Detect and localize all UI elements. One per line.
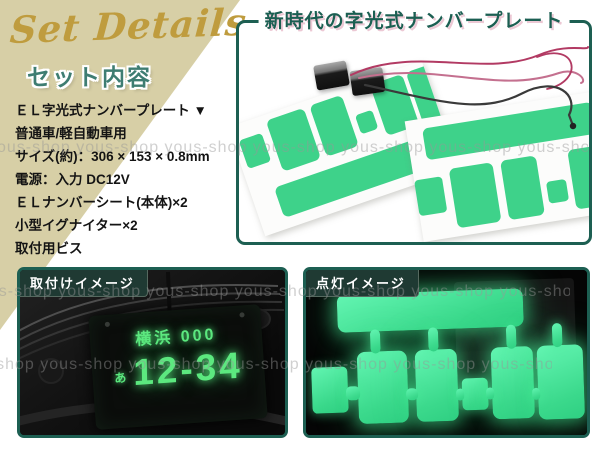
el-segment bbox=[491, 346, 535, 419]
spec-line-size: サイズ(約)：306 × 153 × 0.8mm bbox=[15, 145, 237, 168]
product-listing-image: Set Details セット内容 ＥＬ字光式ナンバープレート ▼ 普通車/軽自… bbox=[0, 0, 600, 450]
el-connector-tab bbox=[506, 325, 517, 349]
glow-panel: 点灯イメージ bbox=[303, 267, 590, 438]
el-connector-tab bbox=[552, 323, 563, 347]
el-segment bbox=[415, 349, 459, 422]
plate-region-text: 横浜 000 bbox=[134, 320, 217, 350]
el-segment bbox=[537, 344, 586, 420]
product-photo bbox=[239, 23, 589, 242]
wire-harness bbox=[239, 23, 589, 242]
el-segment bbox=[357, 350, 409, 424]
el-segment bbox=[462, 378, 489, 411]
glowing-el-sheet bbox=[309, 286, 586, 435]
glow-panel-label: 点灯イメージ bbox=[306, 270, 419, 297]
spec-line-igniter: 小型イグナイター×2 bbox=[15, 214, 237, 237]
install-panel: 横浜 000 あ 12-34 取付けイメージ bbox=[17, 267, 288, 438]
el-connector-tab bbox=[456, 388, 464, 400]
plate-digits: 12-34 bbox=[133, 344, 243, 394]
spec-line-screws: 取付用ビス bbox=[15, 237, 237, 260]
spec-line-power: 電源：入力 DC12V bbox=[15, 168, 237, 191]
license-plate: 横浜 000 あ 12-34 bbox=[88, 304, 268, 430]
spec-line-product: ＥＬ字光式ナンバープレート ▼ bbox=[15, 99, 237, 122]
spec-line-vehicle: 普通車/軽自動車用 bbox=[15, 122, 237, 145]
el-connector-tab bbox=[532, 388, 540, 400]
el-connector-tab bbox=[370, 329, 381, 353]
product-panel: 新時代の字光式ナンバープレート bbox=[236, 20, 592, 245]
plate-number-row: あ 12-34 bbox=[113, 345, 244, 396]
spec-line-sheet: ＥＬナンバーシート(本体)×2 bbox=[15, 191, 237, 214]
bumper-detail bbox=[38, 358, 64, 384]
install-panel-label: 取付けイメージ bbox=[20, 270, 148, 297]
el-connector-tab bbox=[346, 386, 360, 400]
el-connector-tab bbox=[406, 388, 418, 400]
script-heading: Set Details bbox=[9, 0, 242, 52]
plate-screw bbox=[105, 322, 110, 327]
plate-kana: あ bbox=[114, 369, 127, 387]
spec-list: ＥＬ字光式ナンバープレート ▼ 普通車/軽自動車用 サイズ(約)：306 × 1… bbox=[15, 99, 237, 260]
el-connector-tab bbox=[428, 327, 439, 351]
el-segment bbox=[311, 366, 349, 413]
el-connector-tab bbox=[486, 387, 494, 399]
plate-screw bbox=[239, 312, 244, 317]
set-contents-heading: セット内容 bbox=[27, 58, 152, 92]
